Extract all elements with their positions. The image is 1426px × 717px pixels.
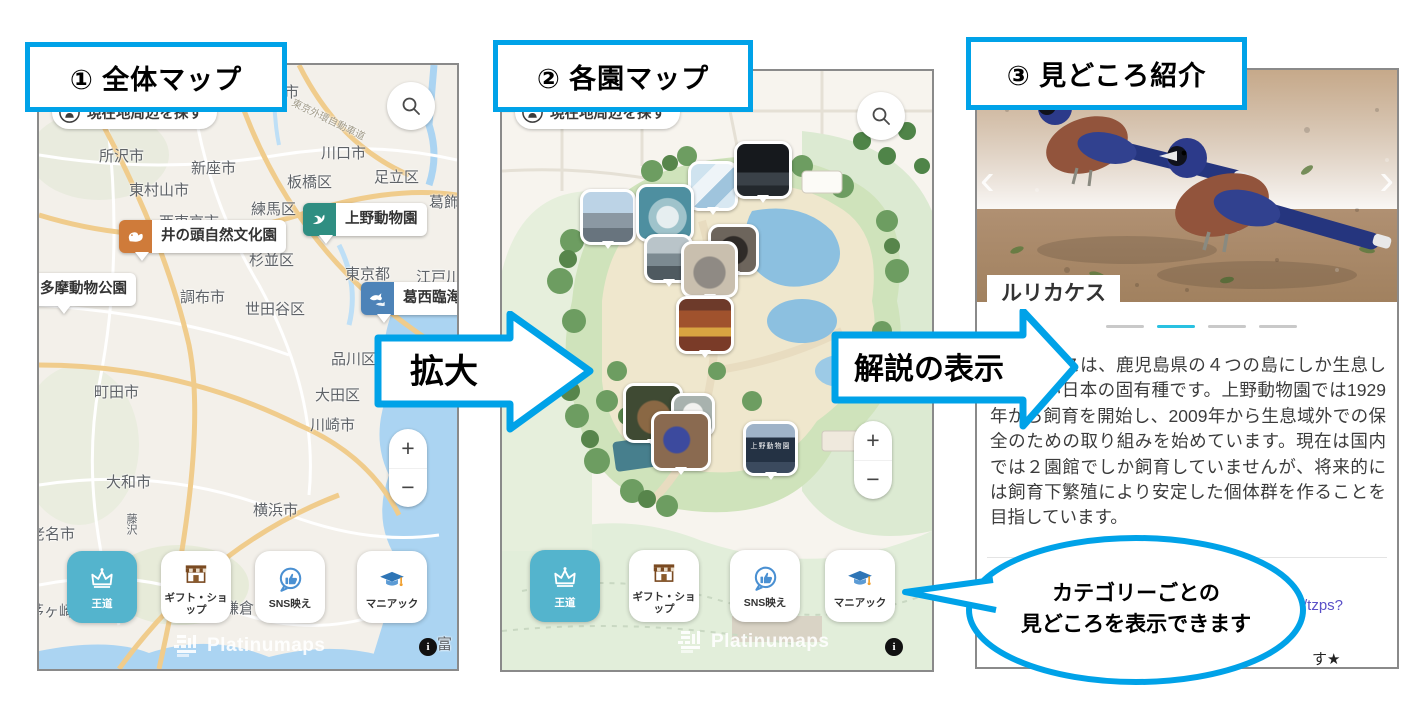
category-label: ギフト・ショップ: [629, 591, 699, 615]
map-city-label: 東京都: [345, 263, 390, 284]
photo-marker-temple[interactable]: [676, 296, 734, 354]
map-city-label: 東村山市: [129, 179, 189, 200]
platinumaps-logo-icon: [174, 635, 200, 657]
step-label-2: ② 各園マップ: [493, 40, 753, 112]
poi-marker-inokashira[interactable]: 井の頭自然文化園: [119, 220, 286, 253]
carousel-dash[interactable]: [1106, 325, 1144, 328]
category-button-royal[interactable]: 王道: [530, 550, 600, 622]
photo-marker-mosaic-wall[interactable]: [688, 161, 738, 211]
zoom-in-arrow-label: 拡大: [410, 353, 478, 391]
carousel-indicator[interactable]: [1106, 325, 1297, 328]
platinumaps-watermark: Platinumaps: [678, 631, 829, 653]
crown-icon: [550, 564, 580, 594]
category-button-gift[interactable]: ギフト・ショップ: [629, 550, 699, 622]
callout-line-1: カテゴリーごとの: [996, 578, 1276, 609]
search-icon: [399, 94, 423, 118]
sns-icon: [750, 564, 780, 594]
zoom-in-button[interactable]: +: [389, 429, 427, 468]
search-button[interactable]: [857, 92, 905, 140]
category-button-maniac[interactable]: マニアック: [825, 550, 895, 622]
detail-text-fragment: す★: [1312, 648, 1340, 669]
search-icon: [869, 104, 893, 128]
crown-icon: [87, 565, 117, 595]
maniac-icon: [377, 565, 407, 595]
category-label: SNS映え: [741, 597, 790, 609]
category-label: マニアック: [831, 597, 890, 609]
category-label: ギフト・ショップ: [161, 592, 231, 616]
photo-marker-elephant[interactable]: [681, 241, 738, 298]
category-label: 王道: [552, 597, 579, 609]
map-city-label: 藤沢: [123, 513, 139, 535]
zoom-out-button[interactable]: −: [854, 460, 892, 500]
info-button[interactable]: i: [419, 638, 437, 656]
map-city-label: 新座市: [191, 157, 236, 178]
photo-marker-west-gate[interactable]: [580, 189, 636, 245]
zoo-gate-sign-text: 上野動物園: [746, 441, 795, 451]
zoom-control: + −: [389, 429, 427, 507]
carousel-dash[interactable]: [1208, 325, 1246, 328]
squirrel-icon: [119, 220, 152, 253]
zoom-out-button[interactable]: −: [389, 468, 427, 508]
show-description-arrow-label: 解説の表示: [854, 352, 1004, 386]
category-button-royal[interactable]: 王道: [67, 551, 137, 623]
photo-marker-gate[interactable]: 上野動物園: [743, 421, 798, 476]
sns-icon: [275, 565, 305, 595]
carousel-prev-icon[interactable]: ‹: [980, 158, 995, 202]
map-city-label: 練馬区: [251, 198, 296, 219]
poi-marker-label: 多摩動物公園: [37, 273, 136, 306]
shop-icon: [649, 558, 679, 588]
step-label-1: ① 全体マップ: [25, 42, 287, 112]
map-city-label: 川口市: [321, 142, 366, 163]
category-label: SNS映え: [266, 598, 315, 610]
search-button[interactable]: [387, 82, 435, 130]
map-city-label: 町田市: [94, 381, 139, 402]
platinumaps-watermark-text: Platinumaps: [207, 635, 325, 657]
poi-marker-label: 井の頭自然文化園: [152, 220, 286, 253]
carousel-next-icon[interactable]: ›: [1379, 158, 1394, 202]
platinumaps-logo-icon: [678, 631, 704, 653]
photo-marker-jay[interactable]: [651, 411, 711, 471]
map-city-label: 調布市: [180, 286, 225, 307]
zoom-in-arrow: 拡大: [374, 311, 596, 433]
platinumaps-watermark-text: Platinumaps: [711, 631, 829, 653]
category-label: マニアック: [363, 598, 422, 610]
poi-marker-ueno-zoo[interactable]: 上野動物園: [303, 203, 427, 236]
map-city-label: 大和市: [106, 471, 151, 492]
map-city-label: 富: [437, 633, 452, 654]
maniac-icon: [845, 564, 875, 594]
zoom-control: + −: [854, 421, 892, 499]
map-city-label: 海老名市: [37, 523, 75, 544]
shop-icon: [181, 559, 211, 589]
map-city-label: 大田区: [315, 384, 360, 405]
map-city-label: 板橋区: [287, 171, 332, 192]
map-city-label: 葛飾区: [429, 191, 459, 212]
carousel-dash[interactable]: [1157, 325, 1195, 328]
category-button-gift[interactable]: ギフト・ショップ: [161, 551, 231, 623]
map-city-label: 世田谷区: [245, 298, 305, 319]
callout-text: カテゴリーごとの 見どころを表示できます: [996, 578, 1276, 640]
step-label-3: ③ 見どころ紹介: [966, 37, 1247, 110]
map-city-label: 横浜市: [253, 499, 298, 520]
carousel-dash[interactable]: [1259, 325, 1297, 328]
photo-marker-night-house[interactable]: [734, 141, 792, 199]
category-button-maniac[interactable]: マニアック: [357, 551, 427, 623]
category-button-sns[interactable]: SNS映え: [255, 551, 325, 623]
show-description-arrow: 解説の表示: [831, 309, 1079, 431]
map-city-label: 所沢市: [99, 145, 144, 166]
swan-icon: [303, 203, 336, 236]
map-city-label: 品川区: [331, 348, 376, 369]
callout-line-2: 見どころを表示できます: [996, 609, 1276, 640]
poi-marker-tama-zoo[interactable]: 多摩動物公園: [37, 273, 136, 306]
highlight-title: ルリカケス: [987, 275, 1120, 313]
category-button-sns[interactable]: SNS映え: [730, 550, 800, 622]
map-city-label: 川崎市: [310, 414, 355, 435]
map-city-label: 足立区: [374, 166, 419, 187]
category-label: 王道: [89, 598, 116, 610]
platinumaps-watermark: Platinumaps: [174, 635, 325, 657]
poi-marker-label: 上野動物園: [336, 203, 427, 236]
